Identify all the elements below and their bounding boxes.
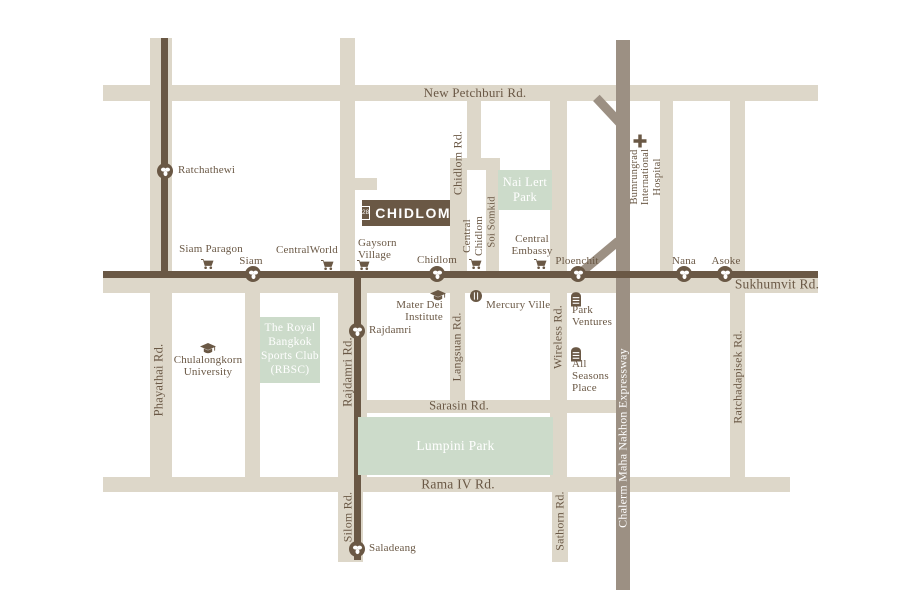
nana-station — [676, 266, 692, 282]
chulalongkorn-graduation-icon — [199, 343, 217, 356]
centralworld-label: CentralWorld — [276, 245, 338, 257]
rama4-road-label: Rama IV Rd. — [421, 478, 495, 493]
park-ventures-building-icon — [570, 292, 583, 307]
saladeang-station — [349, 541, 365, 557]
ratchathewi-station-label: Ratchathewi — [178, 165, 235, 177]
centralworld-cart-icon — [320, 260, 334, 273]
silom-road-label: Silom Rd. — [342, 492, 355, 542]
ploenchit-station — [570, 266, 586, 282]
chidlom-logo-text: CHIDLOM — [375, 205, 451, 221]
mercury-ville-dining-icon — [470, 290, 482, 302]
langsuan-road-label: Langsuan Rd. — [451, 312, 464, 381]
all-seasons-building-icon — [570, 347, 583, 362]
central-chidlom-label: Central Chidlom — [462, 216, 486, 256]
bts-station-icon — [352, 326, 363, 337]
bts-phayathai-line — [161, 38, 168, 275]
chidlom-road-upper — [467, 101, 481, 165]
rajdamri-road-label: Rajdamri Rd. — [341, 337, 355, 407]
phayathai-road-label: Phayathai Rd. — [152, 344, 166, 417]
sukhumvit-road-label: Sukhumvit Rd. — [735, 278, 819, 293]
central-embassy-label: Central Embassy — [511, 234, 552, 258]
sathorn-road-label: Sathorn Rd. — [554, 491, 567, 551]
site-access-road — [355, 178, 377, 190]
bts-station-icon — [679, 269, 690, 280]
ratchadapisek-road-label: Ratchadapisek Rd. — [732, 330, 745, 423]
new-petchburi-road-label: New Petchburi Rd. — [424, 86, 527, 100]
ratchathewi-station — [157, 163, 173, 179]
bumrungrad-hospital-label: Bumrungrad International Hospital — [629, 149, 663, 205]
bts-station-icon — [573, 269, 584, 280]
bts-station-icon — [352, 544, 363, 555]
ratchadamri-north-road — [340, 38, 355, 293]
mater-dei-graduation-icon — [429, 290, 447, 303]
siam-paragon-cart-icon — [200, 259, 214, 272]
chidlom-location-map: 28 CHIDLOM Nai Lert ParkThe Royal Bangko… — [0, 0, 900, 600]
bumrungrad-hospital-cross-icon — [634, 135, 647, 148]
henri-dunant-road — [245, 290, 260, 478]
all-seasons-place-label: All Seasons Place — [572, 359, 609, 395]
wireless-road-label: Wireless Rd. — [552, 305, 565, 369]
siam-station — [245, 266, 261, 282]
mater-dei-label: Mater Dei Institute — [396, 300, 443, 324]
chidlom-logo: 28 CHIDLOM — [362, 200, 450, 226]
bts-station-icon — [720, 269, 731, 280]
bts-station-icon — [248, 269, 259, 280]
expressway-label: Chalerm Maha Nakhon Expressway — [617, 348, 630, 528]
central-embassy-cart-icon — [533, 259, 547, 272]
gaysorn-village-cart-icon — [356, 260, 370, 273]
asoke-station — [717, 266, 733, 282]
chidlom-logo-badge-icon: 28 — [361, 206, 370, 220]
bts-station-icon — [432, 269, 443, 280]
nai-lert-park: Nai Lert Park — [498, 170, 552, 210]
rajdamri-station — [349, 323, 365, 339]
gaysorn-village-label: Gaysorn Village — [358, 238, 397, 262]
chidlom-station — [429, 266, 445, 282]
rajdamri-station-label: Rajdamri — [369, 325, 412, 337]
sarasin-road-label: Sarasin Rd. — [429, 399, 489, 413]
central-chidlom-cart-icon — [468, 259, 482, 272]
bts-station-icon — [160, 166, 171, 177]
mercury-ville-label: Mercury Ville — [486, 300, 550, 312]
lumpini-park: Lumpini Park — [358, 417, 553, 475]
siam-paragon-label: Siam Paragon — [179, 244, 243, 256]
soi-somkid-label: Soi Somkid — [486, 196, 497, 247]
chidlom-road-label: Chidlom Rd. — [452, 131, 465, 195]
chulalongkorn-university-label: Chulalongkorn University — [174, 355, 243, 379]
park-ventures-label: Park Ventures — [572, 305, 612, 329]
saladeang-station-label: Saladeang — [369, 543, 416, 555]
rbsc-park: The Royal Bangkok Sports Club (RBSC) — [260, 317, 320, 383]
bts-sukhumvit-line — [103, 271, 818, 278]
sukhumvit-road — [103, 277, 818, 293]
